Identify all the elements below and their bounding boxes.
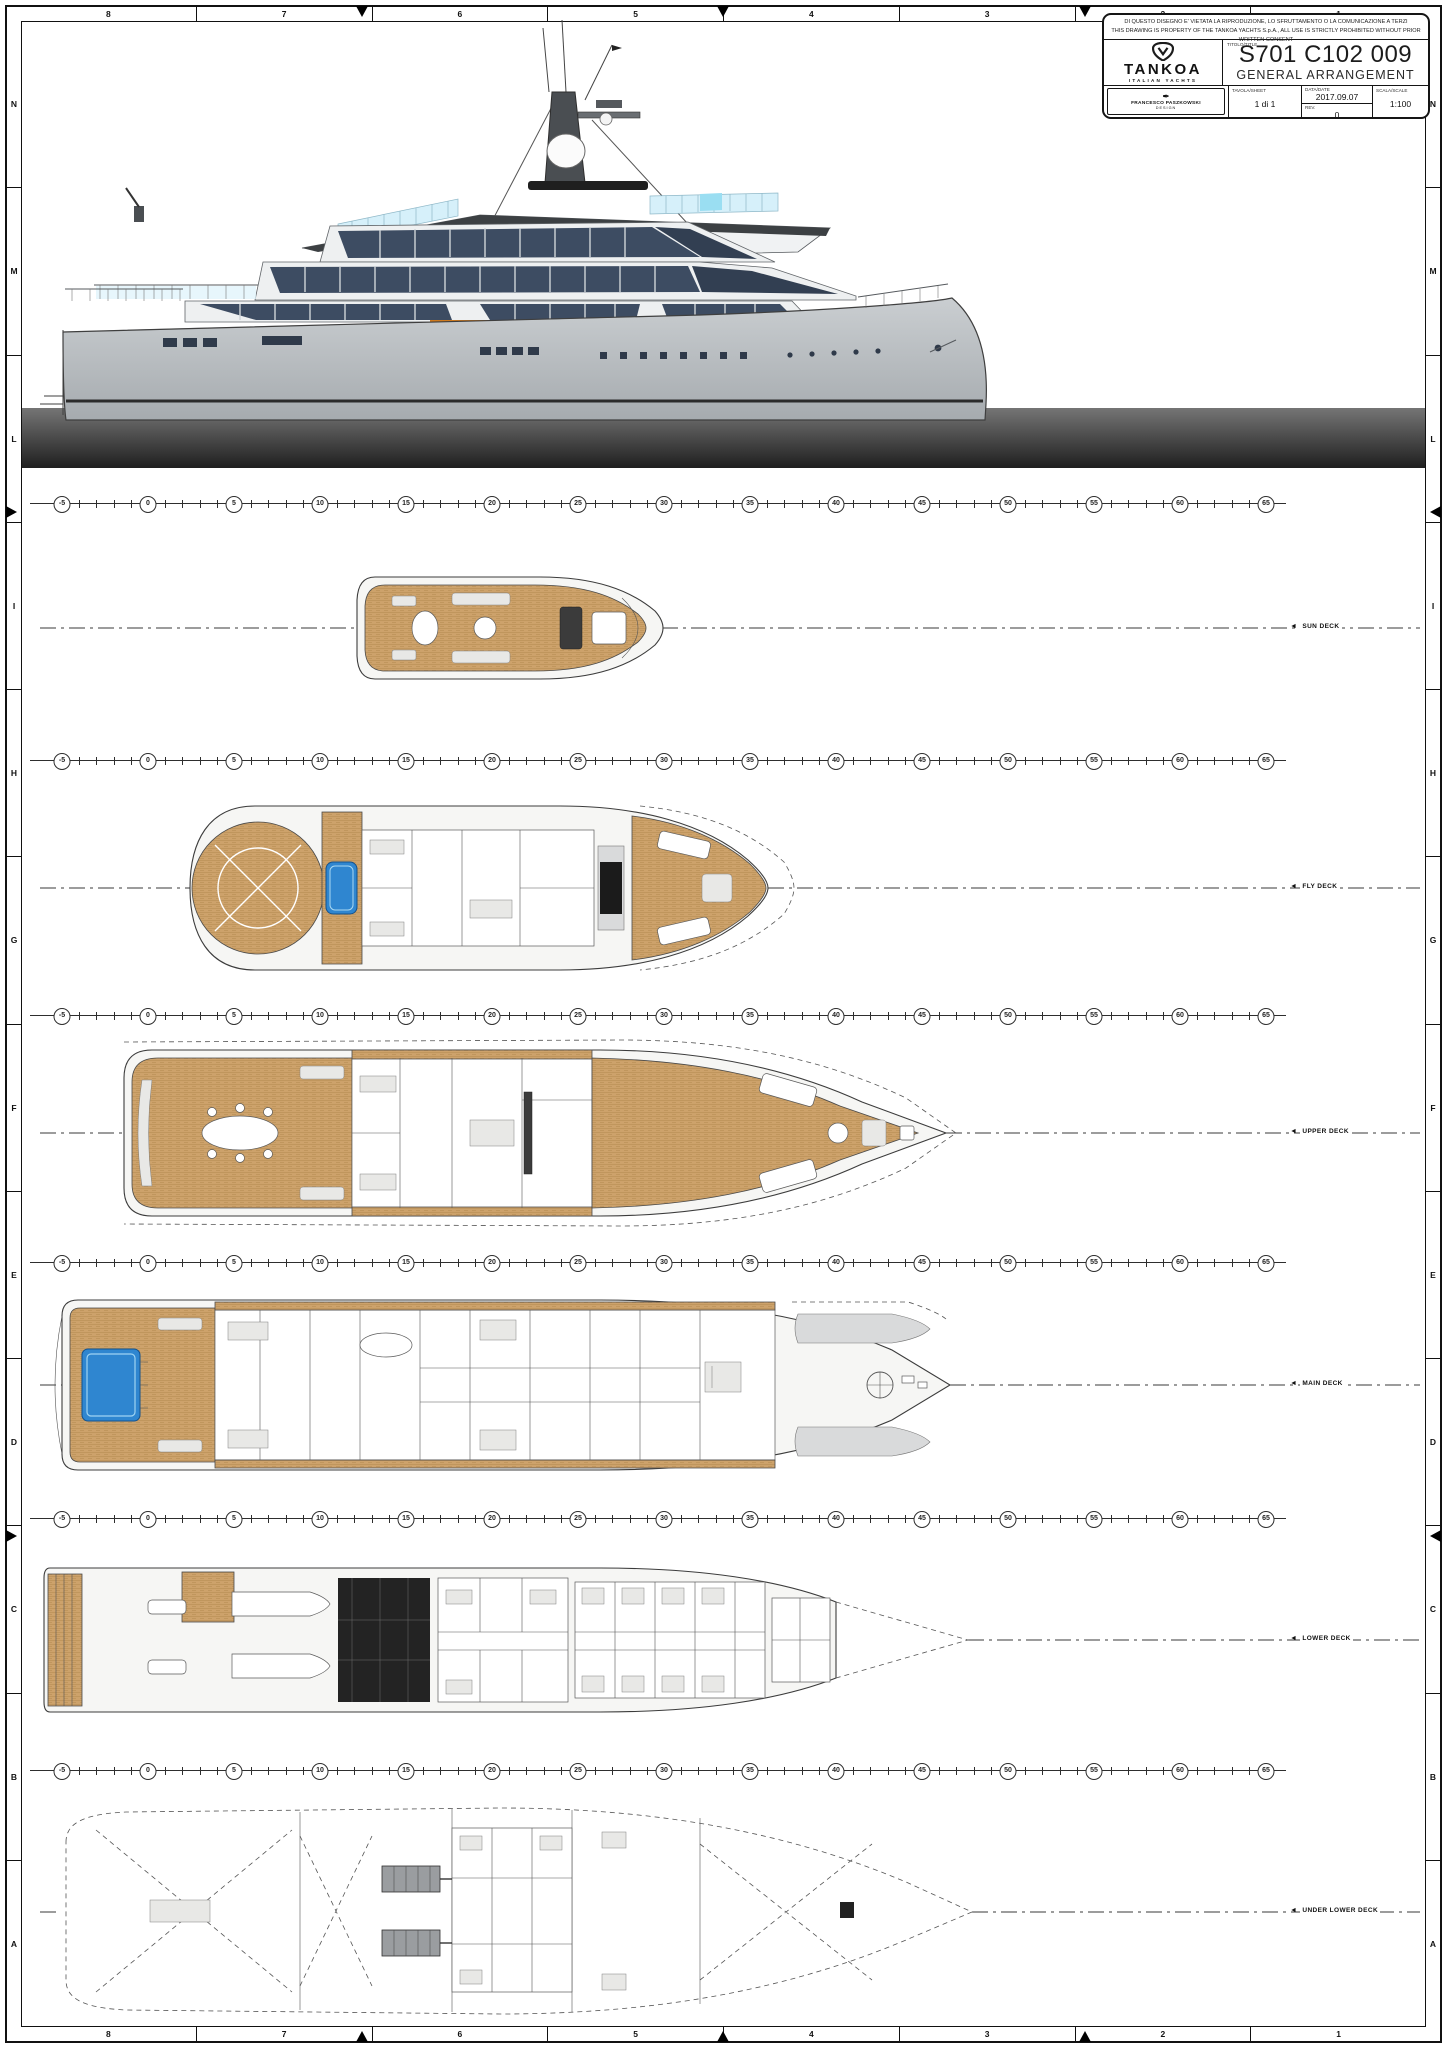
- mast-base: [600, 862, 622, 914]
- aft-structure: [182, 1572, 234, 1622]
- grid-ref-left: D: [7, 1359, 21, 1526]
- title-block: DI QUESTO DISEGNO E' VIETATA LA RIPRODUZ…: [1102, 13, 1430, 119]
- grid-ref-right: M: [1426, 188, 1440, 355]
- sheet-number: 1 di 1: [1232, 93, 1298, 115]
- grid-ref-right: L: [1426, 356, 1440, 523]
- general-arrangement-drawing: .hl{fill:#f6f6f4;stroke:#3c3c3c;stroke-w…: [0, 0, 1447, 2048]
- tankoa-logo: TANKOA ITALIAN YACHTS: [1104, 40, 1223, 85]
- designer-logo-icon: ✒: [1163, 93, 1170, 101]
- master-bed: [705, 1362, 741, 1392]
- deck-plan-sun-deck: [357, 577, 663, 679]
- spa-tub: [560, 607, 582, 649]
- grid-ref-bottom: 6: [373, 2027, 549, 2041]
- drawing-date: 2017.09.07: [1305, 92, 1369, 102]
- fold-mark-icon: [1079, 2031, 1091, 2042]
- fold-mark-icon: [6, 1530, 17, 1542]
- deck-plan-under-lower-deck: [66, 1808, 972, 2014]
- grid-ref-right: D: [1426, 1359, 1440, 1526]
- grid-ref-bottom: 5: [548, 2027, 724, 2041]
- fold-mark-icon: [6, 506, 17, 518]
- grid-ref-left: B: [7, 1694, 21, 1861]
- grid-ref-col-right: NMLIHGFEDCBA: [1426, 21, 1440, 2027]
- grid-ref-left: E: [7, 1192, 21, 1359]
- grid-ref-col-left: NMLIHGFEDCBA: [7, 21, 21, 2027]
- brand-tagline: ITALIAN YACHTS: [1129, 78, 1197, 83]
- grid-ref-right: E: [1426, 1192, 1440, 1359]
- deck-plan-lower-deck: [44, 1568, 968, 1712]
- grid-ref-left: H: [7, 690, 21, 857]
- main-deck-pool: [82, 1349, 140, 1421]
- grid-ref-top: 7: [197, 7, 373, 21]
- grid-ref-bottom: 3: [900, 2027, 1076, 2041]
- grid-ref-bottom: 1: [1251, 2027, 1426, 2041]
- fold-mark-icon: [717, 6, 729, 17]
- grid-ref-left: C: [7, 1526, 21, 1693]
- designer-stamp: ✒ FRANCESCO PASZKOWSKI DESIGN: [1104, 86, 1229, 117]
- grid-ref-right: C: [1426, 1526, 1440, 1693]
- tender-port: [795, 1314, 930, 1343]
- revision-number: 0: [1305, 110, 1369, 119]
- grid-ref-left: I: [7, 523, 21, 690]
- grid-ref-bottom: 8: [21, 2027, 197, 2041]
- grid-ref-bottom: 2: [1076, 2027, 1252, 2041]
- grid-ref-left: N: [7, 21, 21, 188]
- deck-plan-upper-deck: [124, 1040, 956, 1226]
- brand-name: TANKOA: [1124, 62, 1202, 77]
- grid-ref-bottom: 7: [197, 2027, 373, 2041]
- tender-starboard: [795, 1427, 930, 1456]
- designer-sub: DESIGN: [1156, 106, 1177, 110]
- grid-ref-top: 5: [548, 7, 724, 21]
- title-field-label: TITOLO/TITLE: [1227, 42, 1257, 47]
- fold-mark-icon: [1079, 6, 1091, 17]
- fold-mark-icon: [356, 2031, 368, 2042]
- grid-ref-right: I: [1426, 523, 1440, 690]
- grid-ref-right: B: [1426, 1694, 1440, 1861]
- bow-thruster: [840, 1902, 854, 1918]
- fold-mark-icon: [1430, 1530, 1441, 1542]
- tankoa-shield-icon: [1152, 42, 1174, 61]
- garage-tender: [232, 1592, 330, 1616]
- fold-mark-icon: [717, 2031, 729, 2042]
- grid-ref-top: 4: [724, 7, 900, 21]
- main-engines: [382, 1866, 452, 1956]
- deck-plan-main-deck: [55, 1300, 950, 1470]
- drawing-title: GENERAL ARRANGEMENT: [1236, 68, 1414, 82]
- grid-ref-right: F: [1426, 1025, 1440, 1192]
- grid-ref-left: A: [7, 1861, 21, 2027]
- copyright-disclaimer: DI QUESTO DISEGNO E' VIETATA LA RIPRODUZ…: [1104, 15, 1428, 40]
- grid-ref-left: F: [7, 1025, 21, 1192]
- grid-ref-right: H: [1426, 690, 1440, 857]
- grid-ref-left: L: [7, 356, 21, 523]
- deck-plan-fly-deck: [190, 806, 794, 970]
- mast-platform: [528, 181, 648, 190]
- fold-mark-icon: [1430, 506, 1441, 518]
- grid-ref-right: A: [1426, 1861, 1440, 2027]
- grid-ref-top: 8: [21, 7, 197, 21]
- grid-ref-top: 6: [373, 7, 549, 21]
- drawing-sheet: .hl{fill:#f6f6f4;stroke:#3c3c3c;stroke-w…: [0, 0, 1447, 2048]
- radar-dome: [547, 134, 585, 168]
- dining-table: [202, 1116, 278, 1150]
- drawing-scale: 1:100: [1376, 93, 1425, 115]
- project-code: S701 C102 009: [1239, 43, 1412, 67]
- profile-view: [40, 20, 986, 420]
- fold-mark-icon: [356, 6, 368, 17]
- grid-ref-top: 3: [900, 7, 1076, 21]
- grid-ref-left: M: [7, 188, 21, 355]
- grid-ref-bottom: 4: [724, 2027, 900, 2041]
- grid-ref-right: G: [1426, 857, 1440, 1024]
- grid-ref-left: G: [7, 857, 21, 1024]
- stair-well: [412, 611, 438, 645]
